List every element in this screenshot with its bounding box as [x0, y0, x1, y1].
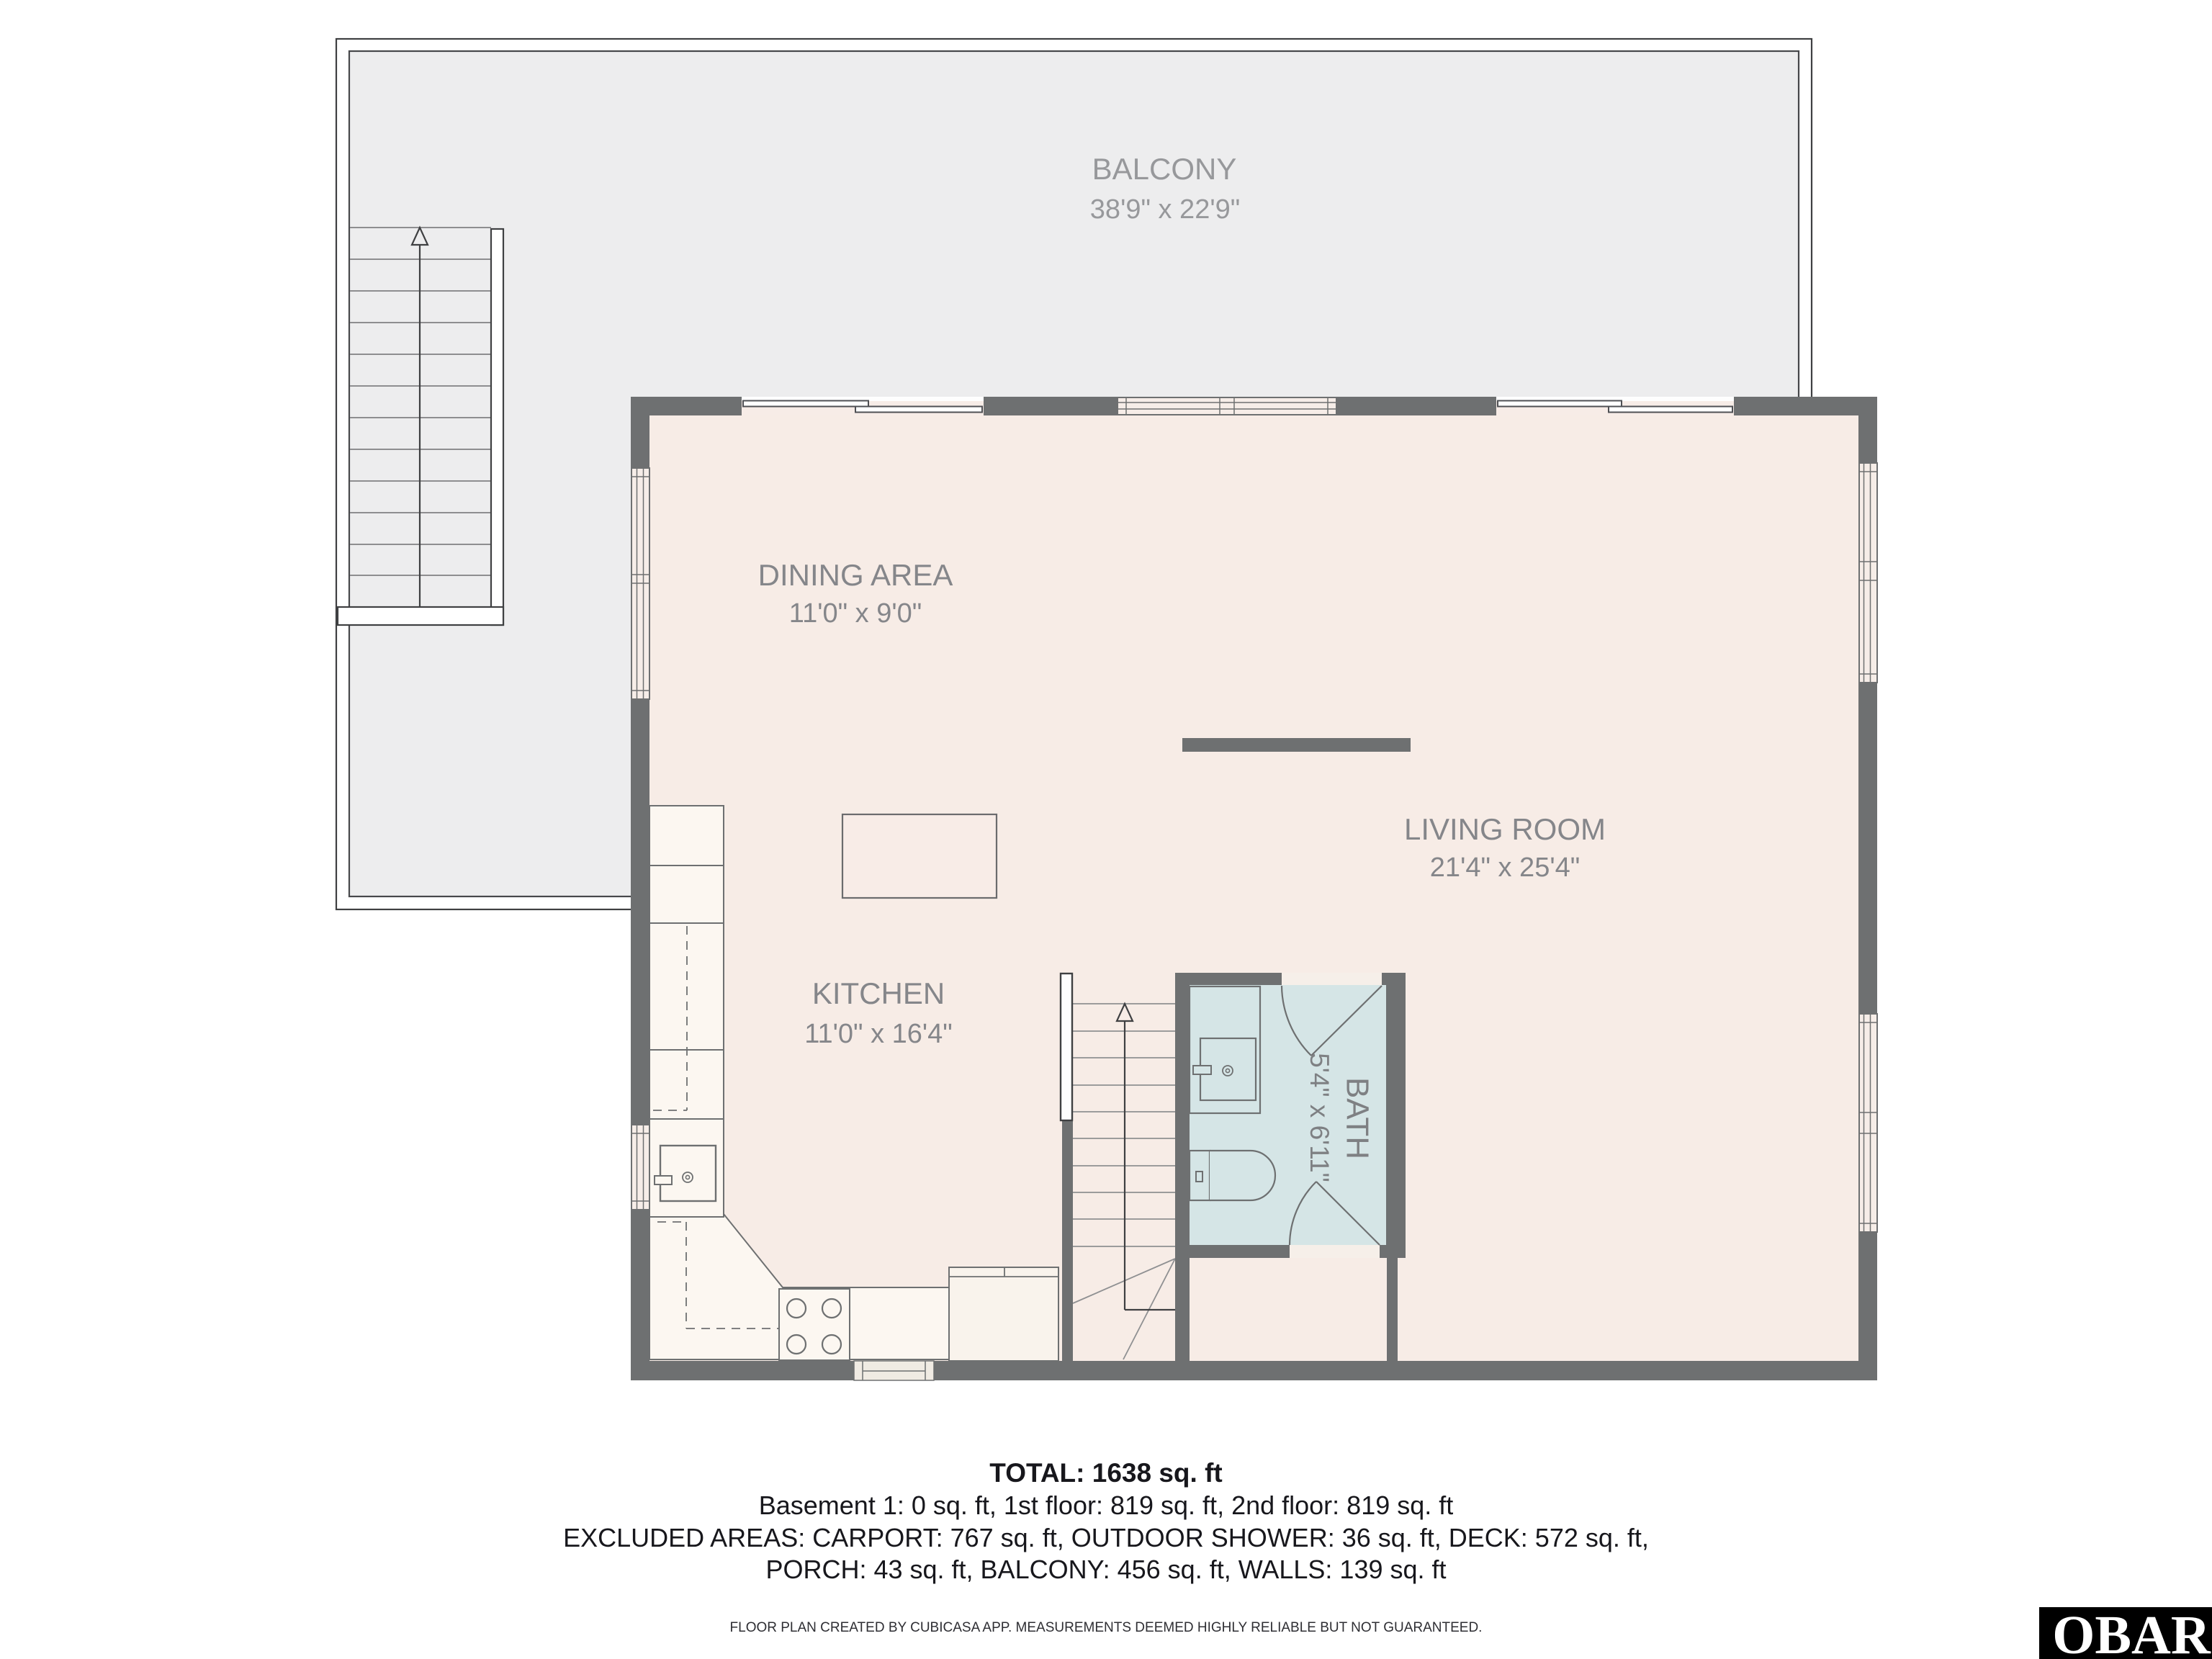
svg-text:11'0" x 16'4": 11'0" x 16'4" [804, 1019, 953, 1049]
svg-text:PORCH: 43 sq. ft, BALCONY: 456: PORCH: 43 sq. ft, BALCONY: 456 sq. ft, W… [765, 1555, 1446, 1584]
svg-text:OBAR: OBAR [2052, 1605, 2211, 1659]
svg-text:FLOOR PLAN CREATED BY CUBICASA: FLOOR PLAN CREATED BY CUBICASA APP. MEAS… [730, 1620, 1483, 1635]
svg-text:LIVING ROOM: LIVING ROOM [1404, 812, 1606, 846]
svg-text:11'0" x 9'0": 11'0" x 9'0" [789, 598, 922, 629]
svg-text:5'4" x 6'11": 5'4" x 6'11" [1305, 1053, 1334, 1182]
svg-text:KITCHEN: KITCHEN [812, 976, 945, 1010]
svg-text:Basement 1: 0 sq. ft, 1st floo: Basement 1: 0 sq. ft, 1st floor: 819 sq.… [759, 1491, 1454, 1520]
svg-text:BALCONY: BALCONY [1092, 152, 1237, 186]
svg-text:BATH: BATH [1339, 1077, 1375, 1159]
svg-text:DINING AREA: DINING AREA [758, 558, 953, 592]
svg-text:21'4" x 25'4": 21'4" x 25'4" [1430, 853, 1580, 883]
svg-text:EXCLUDED AREAS: CARPORT: 767 s: EXCLUDED AREAS: CARPORT: 767 sq. ft, OUT… [563, 1523, 1649, 1552]
svg-text:TOTAL: 1638 sq. ft: TOTAL: 1638 sq. ft [989, 1458, 1222, 1488]
svg-text:38'9" x 22'9": 38'9" x 22'9" [1090, 194, 1240, 225]
